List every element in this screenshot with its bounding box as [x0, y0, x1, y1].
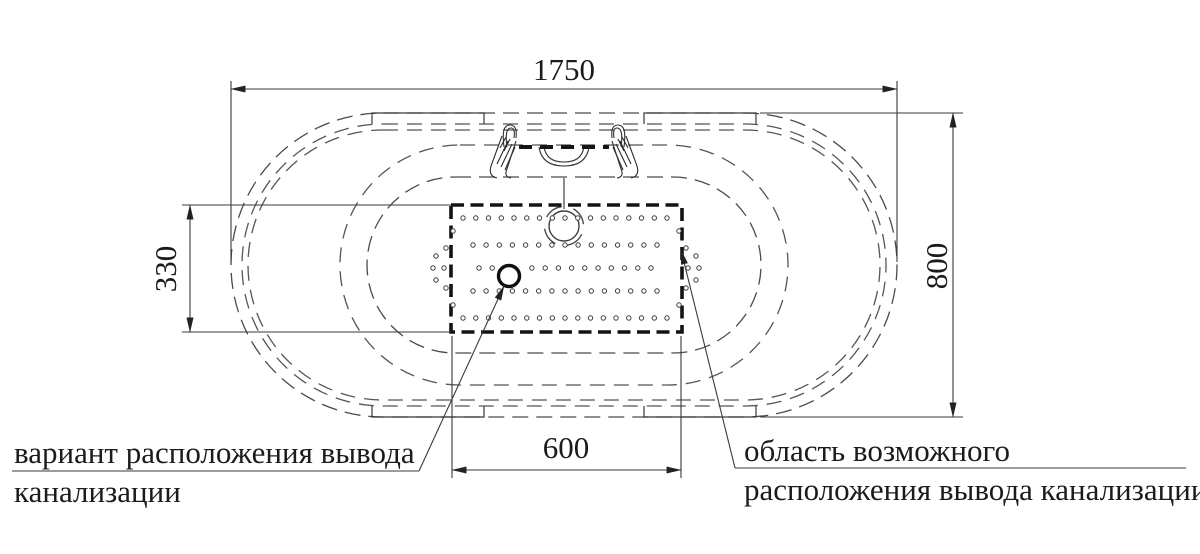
- label-drain-variant: вариант расположения вывода канализации: [12, 286, 504, 509]
- label-drain-variant-line2: канализации: [14, 474, 181, 509]
- dim-330-value: 330: [148, 246, 183, 293]
- dimension-330: 330: [148, 205, 451, 332]
- jet-dots: [431, 216, 701, 320]
- rim-notches: [372, 113, 756, 417]
- drain-circle: [499, 266, 520, 287]
- faucet-detail: [490, 125, 638, 209]
- bathtub-technical-drawing: 1750 800 330 600 вариант расположения вы…: [0, 0, 1200, 554]
- dimension-800: 800: [760, 113, 963, 417]
- dimension-1750: 1750: [231, 52, 897, 262]
- tub-rim-outlines: [231, 113, 897, 417]
- outlet-zone-rect: [451, 205, 682, 332]
- label-drain-variant-line1: вариант расположения вывода: [14, 435, 415, 470]
- dim-600-value: 600: [543, 430, 590, 465]
- dimension-600: 600: [452, 336, 681, 478]
- drawing-canvas: 1750 800 330 600 вариант расположения вы…: [0, 0, 1200, 554]
- dim-800-value: 800: [919, 243, 954, 290]
- label-drain-area-line1: область возможного: [744, 433, 1010, 468]
- dim-1750-value: 1750: [533, 52, 595, 87]
- label-drain-area-line2: расположения вывода канализации: [744, 472, 1200, 507]
